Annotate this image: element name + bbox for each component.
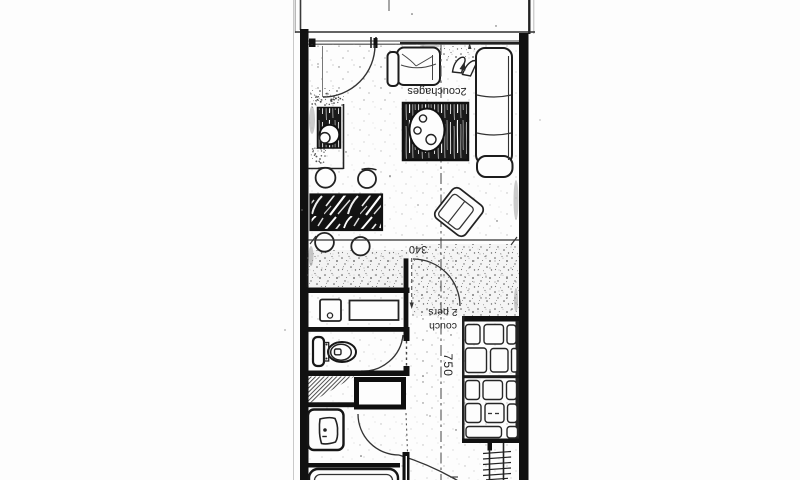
svg-text:340: 340 xyxy=(409,243,427,255)
svg-text:2couchages: 2couchages xyxy=(407,85,467,97)
svg-text:750: 750 xyxy=(441,354,455,378)
svg-text:couch: couch xyxy=(429,320,457,332)
svg-text:2 pers: 2 pers xyxy=(428,306,457,318)
